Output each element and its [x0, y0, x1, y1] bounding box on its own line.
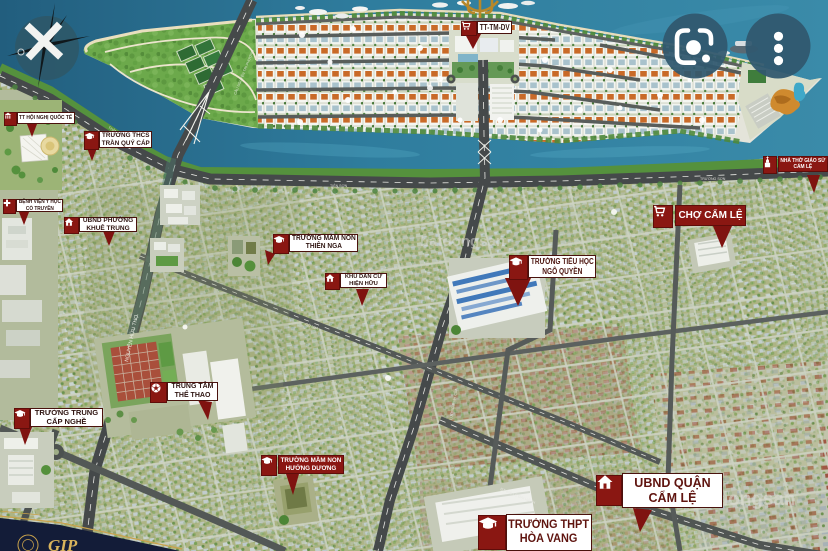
svg-text:batdongsan: batdongsan [420, 233, 505, 250]
svg-text:TIÊN SƠN: TIÊN SƠN [330, 183, 348, 188]
svg-text:GIP: GIP [48, 536, 78, 551]
svg-text:TRƯỜNG SƠN: TRƯỜNG SƠN [700, 176, 726, 181]
